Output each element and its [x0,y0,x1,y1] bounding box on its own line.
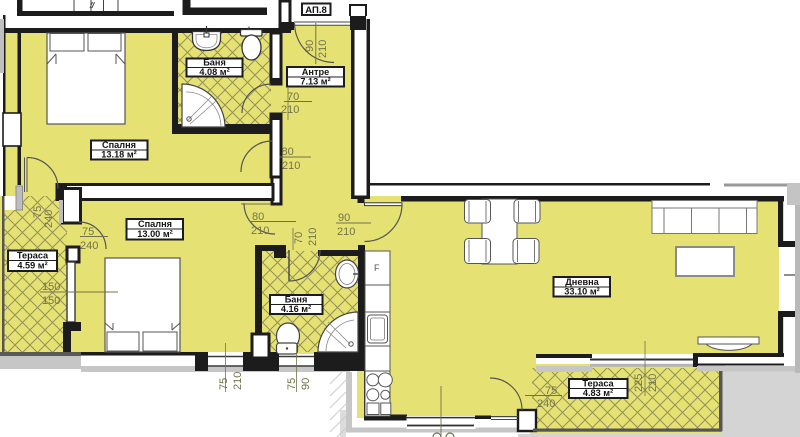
svg-text:225: 225 [633,374,645,392]
svg-text:33.10 м²: 33.10 м² [564,287,599,297]
svg-text:210: 210 [337,226,355,238]
svg-text:75: 75 [218,378,230,390]
svg-text:150: 150 [42,281,60,293]
svg-text:90: 90 [338,212,350,224]
svg-text:АП.8: АП.8 [305,5,327,16]
svg-text:Дневна: Дневна [565,277,599,287]
svg-text:210: 210 [251,225,269,237]
svg-text:Спалня: Спалня [102,140,136,150]
svg-text:Тераса: Тераса [582,379,614,389]
svg-text:4.59 м²: 4.59 м² [17,261,47,271]
svg-text:210: 210 [647,374,659,392]
svg-text:90: 90 [300,378,312,390]
svg-text:Тераса: Тераса [17,251,49,261]
svg-text:150: 150 [42,295,60,307]
svg-text:Баня: Баня [285,295,308,305]
svg-text:Спалня: Спалня [138,219,172,229]
svg-text:210: 210 [317,40,329,58]
svg-text:F: F [374,263,380,273]
svg-text:210: 210 [232,372,244,390]
svg-text:240: 240 [537,398,555,410]
svg-text:4.08 м²: 4.08 м² [199,67,229,77]
svg-text:4.16 м²: 4.16 м² [281,304,311,314]
svg-text:13.00 м²: 13.00 м² [137,229,172,239]
svg-text:210: 210 [281,104,299,116]
svg-text:90: 90 [304,40,316,52]
svg-text:210: 210 [282,160,300,172]
svg-text:13.18 м²: 13.18 м² [101,150,136,160]
svg-text:70: 70 [293,232,305,244]
svg-text:80: 80 [282,146,294,158]
svg-text:240: 240 [43,210,55,228]
svg-text:Баня: Баня [203,58,226,68]
svg-text:240: 240 [80,240,98,252]
svg-text:4.83 м²: 4.83 м² [583,388,613,398]
svg-text:Антре: Антре [302,67,329,77]
svg-text:7.13 м²: 7.13 м² [300,77,330,87]
svg-text:210: 210 [307,228,319,246]
